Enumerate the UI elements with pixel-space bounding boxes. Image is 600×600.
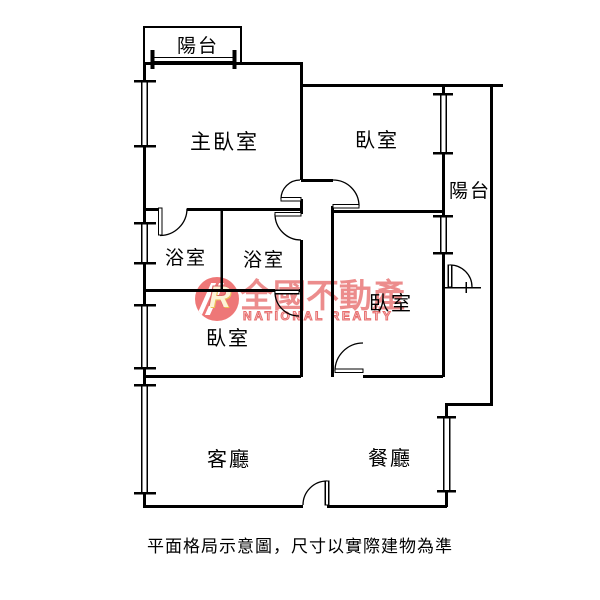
room-label-bedroom-mid-right: 臥室 bbox=[369, 287, 413, 316]
room-label-balcony-top: 陽台 bbox=[177, 31, 219, 58]
room-label-bathroom-right: 浴室 bbox=[243, 245, 285, 272]
room-label-balcony-right: 陽台 bbox=[449, 176, 491, 203]
disclaimer-caption: 平面格局示意圖，尺寸以實際建物為準 bbox=[0, 532, 600, 557]
room-label-bedroom-bottom-left: 臥室 bbox=[206, 322, 250, 351]
room-label-bedroom-top-right: 臥室 bbox=[355, 124, 399, 153]
room-label-master-bedroom: 主臥室 bbox=[190, 126, 259, 156]
room-label-living-room: 客廳 bbox=[207, 443, 251, 472]
floor-plan-drawing bbox=[0, 0, 600, 600]
room-label-bathroom-left: 浴室 bbox=[165, 243, 207, 270]
windows bbox=[142, 58, 450, 494]
floor-plan-page: R 全國不動產 NATIONAL REALTY bbox=[0, 0, 600, 600]
room-label-dining-room: 餐廳 bbox=[368, 442, 412, 471]
